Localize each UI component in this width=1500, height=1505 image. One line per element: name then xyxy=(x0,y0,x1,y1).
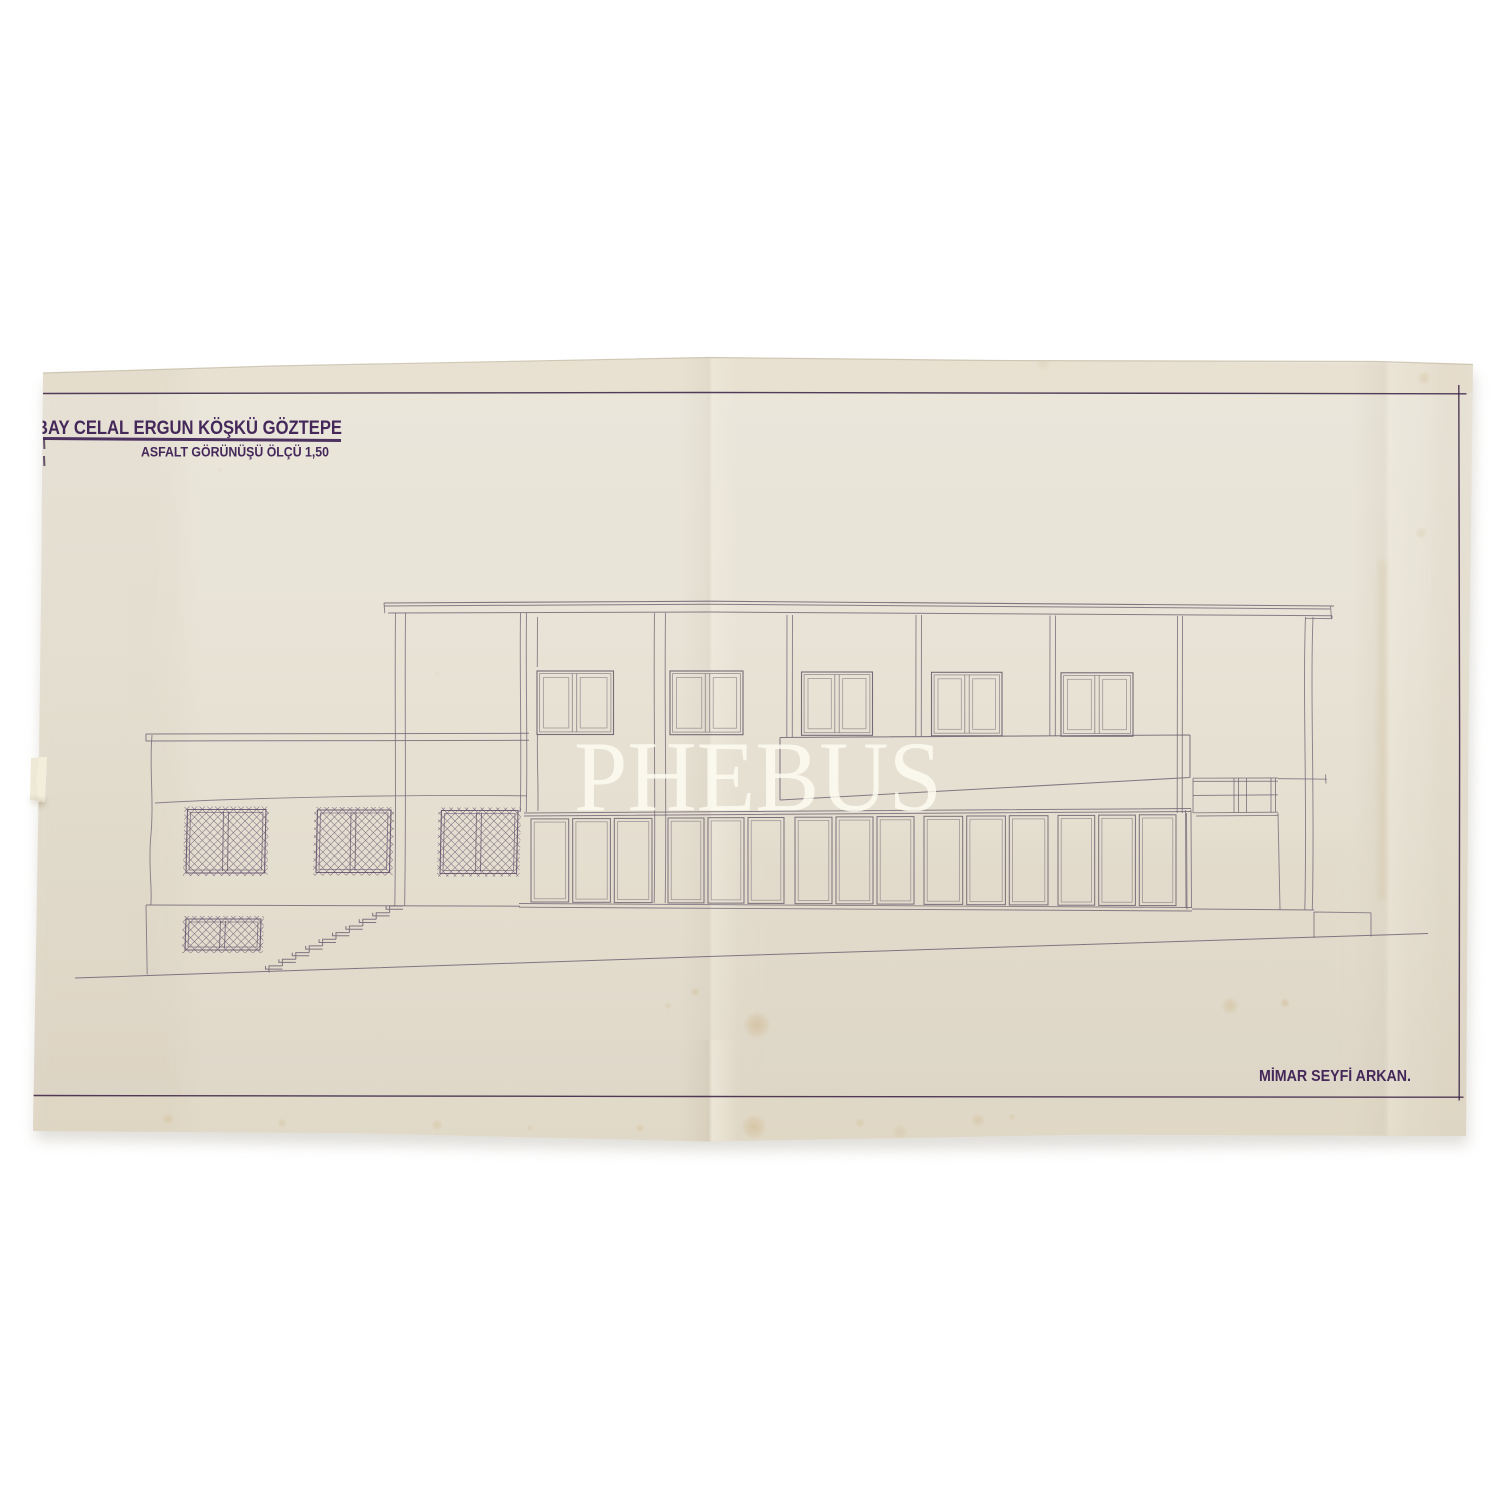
svg-text:BAY CELAL ERGUN KÖŞKÜ GÖZTEPE: BAY CELAL ERGUN KÖŞKÜ GÖZTEPE xyxy=(36,416,342,439)
svg-text:PHEBUS: PHEBUS xyxy=(574,721,942,833)
svg-text:MİMAR SEYFİ ARKAN.: MİMAR SEYFİ ARKAN. xyxy=(1259,1068,1411,1085)
svg-text:ASFALT GÖRÜNÜŞÜ ÖLÇÜ 1,50: ASFALT GÖRÜNÜŞÜ ÖLÇÜ 1,50 xyxy=(141,445,329,460)
